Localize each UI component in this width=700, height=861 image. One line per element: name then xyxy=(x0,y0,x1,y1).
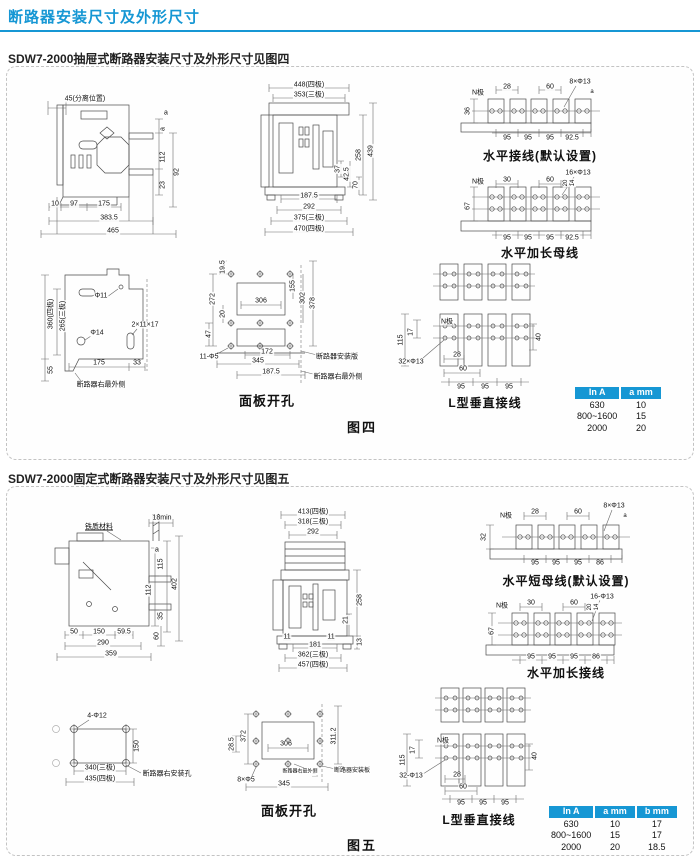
figure-subtitle: 面板开孔 xyxy=(238,395,296,408)
dim-label: 92.5 xyxy=(564,235,580,242)
dim-label: 345 xyxy=(251,358,265,365)
dim-label: 86 xyxy=(591,654,601,661)
figure-panel-cutout-fixed: 28.5372306311.28×Φ53452断路器右最外侧断路器安装板面板开孔 xyxy=(226,696,431,851)
dim-label: 95 xyxy=(504,384,514,391)
dim-label: 360(四极) xyxy=(48,298,55,330)
dim-label: 470(四极) xyxy=(293,226,325,233)
dim-label: 35 xyxy=(158,611,165,621)
mounting-holes-art xyxy=(23,701,223,811)
dim-label: 40 xyxy=(536,332,543,342)
dim-label: 402 xyxy=(172,577,179,591)
dim-label: 17 xyxy=(408,327,415,337)
dim-label: 311.2 xyxy=(331,727,338,746)
dim-label: 95 xyxy=(526,654,536,661)
figure-fixed-front-view: 413(四极)318(三极)29225821111113181362(三极)45… xyxy=(257,506,417,681)
table-cell: 800~1600 xyxy=(575,411,619,421)
dim-label: 272 xyxy=(210,292,217,306)
figure-5-panel: 铁质材料18mina11540211235605015059.5290359 4… xyxy=(6,486,694,856)
dim-label: 95 xyxy=(530,560,540,567)
dim-label: 28.5 xyxy=(229,736,236,752)
dim-label: 95 xyxy=(478,800,488,807)
dim-label: 10 xyxy=(50,201,60,208)
catalog-page: 断路器安装尺寸及外形尺寸 SDW7-2000抽屉式断路器安装尺寸及外形尺寸见图四 xyxy=(0,0,700,861)
dim-label: 55 xyxy=(48,365,55,375)
dim-label: 32 xyxy=(481,532,488,542)
dim-label: 95 xyxy=(569,654,579,661)
dim-label: 258 xyxy=(356,148,363,162)
dim-label: 95 xyxy=(523,135,533,142)
dim-label: 95 xyxy=(456,800,466,807)
dim-label: 8×Φ13 xyxy=(568,79,591,86)
dim-label: 8×Φ5 xyxy=(236,777,255,784)
dim-label: 95 xyxy=(573,560,583,567)
figure-panel-cutout-drawout: 19.5272204730615530237811-Φ5172345187.5断… xyxy=(197,253,407,433)
dim-label: 36 xyxy=(465,106,472,116)
table-cell: 2000 xyxy=(549,842,593,852)
dim-label: 372 xyxy=(241,729,248,743)
dim-label: 150 xyxy=(92,629,106,636)
dim-label: 175 xyxy=(97,201,111,208)
dim-label: 47 xyxy=(206,329,213,339)
dim-label: 70 xyxy=(353,180,360,190)
figure-horizontal-extended-busbar: N极306016×Φ1320146795959592.5水平加长母线 xyxy=(452,169,692,261)
dim-label: 30 xyxy=(526,600,536,607)
figure-4-panel: 45(分离位置)aa11223921097175383.5465 448(四极)… xyxy=(6,66,694,460)
dim-label: 175 xyxy=(92,360,106,367)
dim-label: a xyxy=(160,126,167,132)
dim-label: 11 xyxy=(282,634,291,641)
figure-horizontal-short-busbar: N极28608×Φ13a3295959586水平短母线(默认设置) xyxy=(462,501,697,596)
dim-label: 14 xyxy=(594,603,600,612)
figure-drawout-side-view: 45(分离位置)aa11223921097175383.5465 xyxy=(21,77,246,247)
dim-label: 86 xyxy=(595,560,605,567)
dim-label: Φ14 xyxy=(89,330,104,337)
table-cell: 10 xyxy=(621,400,661,410)
dim-label: 97 xyxy=(69,201,79,208)
mounting-side-view-art xyxy=(21,259,206,424)
dim-label: 11 xyxy=(326,634,335,641)
figure-subtitle: 水平加长母线 xyxy=(500,247,580,259)
dim-label: 95 xyxy=(551,560,561,567)
dim-label: 302 xyxy=(300,291,307,305)
dim-label: 37 xyxy=(335,164,342,174)
dim-label: N极 xyxy=(495,603,509,610)
table-cell: 15 xyxy=(595,830,635,840)
table-row: 63010 xyxy=(575,400,661,410)
table-row: 800~16001517 xyxy=(549,830,677,840)
dim-label: 318(三极) xyxy=(297,519,329,526)
dim-label: 60 xyxy=(573,509,583,516)
dim-label: 187.5 xyxy=(261,369,281,376)
figure-subtitle: L型垂直接线 xyxy=(441,814,516,826)
dim-label: 8×Φ13 xyxy=(602,503,625,510)
dim-label: 30 xyxy=(502,177,512,184)
dim-label: 28 xyxy=(452,352,462,359)
dim-label: 375(三极) xyxy=(293,215,325,222)
dim-label: 28 xyxy=(502,84,512,91)
figure-subtitle: 水平短母线(默认设置) xyxy=(502,575,631,587)
dim-label: 439 xyxy=(368,144,375,158)
table-header-cell: In A xyxy=(575,387,619,399)
dim-label: 95 xyxy=(523,235,533,242)
table-row: 20002018.5 xyxy=(549,842,677,852)
dim-label: 42.5 xyxy=(344,166,351,182)
dim-label: 60 xyxy=(154,631,161,641)
figure-mounting-holes: 4-Φ12150340(三极)435(四极)断路器右安装孔 xyxy=(23,701,223,811)
dim-label: N极 xyxy=(440,319,454,326)
dim-label: 95 xyxy=(480,384,490,391)
dim-label: 铁质材料 xyxy=(84,524,114,531)
dim-label: 413(四极) xyxy=(297,509,329,516)
dim-label: 112 xyxy=(160,150,167,163)
table-cell: 18.5 xyxy=(637,842,677,852)
dim-label: 20 xyxy=(563,179,569,188)
panel-cutout-drawout-art xyxy=(197,253,407,433)
dim-label: 150 xyxy=(134,739,141,753)
table-cell: 10 xyxy=(595,819,635,829)
dim-label: 362(三极) xyxy=(297,652,329,659)
dim-label: 92 xyxy=(174,167,181,177)
dim-label: 95 xyxy=(545,235,555,242)
figure-fixed-side-view: 铁质材料18mina11540211235605015059.5290359 xyxy=(21,506,256,666)
dim-label: 断路器右最外侧 xyxy=(281,770,318,775)
dim-label: 4-Φ12 xyxy=(86,713,108,720)
dim-label: 67 xyxy=(465,201,472,211)
dim-label: 40 xyxy=(532,751,539,761)
drawout-front-view-art xyxy=(247,79,407,249)
dim-label: 18min xyxy=(151,515,172,522)
dim-label: 59.5 xyxy=(116,629,132,636)
dim-label: 457(四极) xyxy=(297,662,329,669)
dim-label: 60 xyxy=(458,784,468,791)
dim-label: 断路器右最外侧 xyxy=(76,382,127,389)
dim-label: 断路器安装版 xyxy=(315,354,359,361)
figure-4-caption: 图四 xyxy=(347,417,377,436)
dim-label: 383.5 xyxy=(99,215,119,222)
dim-label: N极 xyxy=(436,738,450,745)
table-cell: 630 xyxy=(575,400,619,410)
figure-mounting-side-view: Φ112×11×17Φ14360(四极)265(三极)5517533断路器右最外… xyxy=(21,259,206,424)
dim-label: 292 xyxy=(302,204,316,211)
figure-5-caption: 图五 xyxy=(347,835,377,854)
dim-label: 50 xyxy=(69,629,79,636)
dim-label: 95 xyxy=(456,384,466,391)
dim-label: a xyxy=(163,110,169,117)
dim-label: 11-Φ5 xyxy=(198,354,219,361)
dim-label: 95 xyxy=(502,235,512,242)
dim-label: 306 xyxy=(254,298,268,305)
dim-label: 292 xyxy=(306,529,320,536)
table-row: 6301017 xyxy=(549,819,677,829)
table-cell: 17 xyxy=(637,830,677,840)
dim-label: 13 xyxy=(357,637,364,647)
dim-label: 45(分离位置) xyxy=(64,96,106,103)
figure-subtitle: 水平接线(默认设置) xyxy=(482,150,598,162)
figure-drawout-front-view: 448(四极)353(三极)2584393742.570187.5292375(… xyxy=(247,79,407,249)
dim-label: 378 xyxy=(310,296,317,310)
fixed-front-view-art xyxy=(257,506,417,681)
dim-label: Φ11 xyxy=(94,293,109,300)
dim-label: a xyxy=(154,547,160,554)
dim-label: 19.5 xyxy=(220,259,227,275)
table-header-cell: In A xyxy=(549,806,593,818)
dim-label: 断路器安装板 xyxy=(333,768,371,774)
dim-label: a xyxy=(622,513,627,519)
table-header-cell: a mm xyxy=(621,387,661,399)
dim-label: 16-Φ13 xyxy=(589,594,615,601)
dim-label: 181 xyxy=(308,642,322,649)
dim-label: 67 xyxy=(489,626,496,636)
dim-label: 断路器右安装孔 xyxy=(142,771,193,778)
dim-label: 340(三极) xyxy=(84,765,116,772)
table-cell: 15 xyxy=(621,411,661,421)
section-drawout-label: SDW7-2000抽屉式断路器安装尺寸及外形尺寸见图四 xyxy=(8,50,289,67)
table-cell: 800~1600 xyxy=(549,830,593,840)
dim-label: 断路器右最外侧 xyxy=(313,374,364,381)
figure-horizontal-wiring-default: N极28608×Φ13a3695959592.5水平接线(默认设置) xyxy=(452,77,692,165)
section-fixed-label: SDW7-2000固定式断路器安装尺寸及外形尺寸见图五 xyxy=(8,470,289,487)
dim-label: 112 xyxy=(146,583,153,596)
table-header-cell: a mm xyxy=(595,806,635,818)
dim-label: 448(四极) xyxy=(293,82,325,89)
dim-label: 20 xyxy=(220,309,227,319)
dim-label: a xyxy=(589,89,594,95)
dim-label: 187.5 xyxy=(299,193,319,200)
drawout-side-view-art xyxy=(21,77,246,247)
table-cell: 630 xyxy=(549,819,593,829)
dim-label: 465 xyxy=(106,228,120,235)
dim-label: 95 xyxy=(500,800,510,807)
dim-label: 60 xyxy=(545,84,555,91)
dim-label: 14 xyxy=(570,179,576,188)
table-cell: 2000 xyxy=(575,423,619,433)
header-rule xyxy=(0,30,700,32)
dim-label: 60 xyxy=(545,177,555,184)
dim-label: 33 xyxy=(132,360,142,367)
fixed-side-view-art xyxy=(21,506,256,666)
dim-label: 20 xyxy=(587,603,593,612)
figure-horizontal-extended-wiring: N极306016-Φ1320146795959586水平加长接线 xyxy=(462,593,697,685)
dim-label: 60 xyxy=(569,600,579,607)
dim-label: 28 xyxy=(452,772,462,779)
dim-label: 16×Φ13 xyxy=(564,170,591,177)
dim-label: 95 xyxy=(545,135,555,142)
table-header-cell: b mm xyxy=(637,806,677,818)
dim-label: 95 xyxy=(547,654,557,661)
dim-label: 353(三极) xyxy=(293,92,325,99)
dim-label: 155 xyxy=(290,279,297,293)
dim-label: 21 xyxy=(343,615,350,625)
figure-subtitle: 面板开孔 xyxy=(260,805,318,818)
table-cell: 20 xyxy=(621,423,661,433)
dim-label: N极 xyxy=(471,179,485,186)
dim-label: N极 xyxy=(471,90,485,97)
dim-label: 60 xyxy=(458,366,468,373)
fig4-current-dimension-table: In Aa mm63010800~160015200020 xyxy=(573,386,663,434)
dim-label: 306 xyxy=(279,741,293,748)
dim-label: 115 xyxy=(158,557,165,570)
table-cell: 20 xyxy=(595,842,635,852)
dim-label: 95 xyxy=(502,135,512,142)
panel-cutout-fixed-art xyxy=(226,696,431,851)
dim-label: 435(四极) xyxy=(84,776,116,783)
dim-label: 258 xyxy=(357,593,364,607)
fig5-current-dimension-table: In Aa mmb mm6301017800~1600151720002018.… xyxy=(547,805,679,853)
dim-label: 345 xyxy=(277,781,291,788)
dim-label: 359 xyxy=(104,651,118,658)
figure-subtitle: 水平加长接线 xyxy=(526,667,606,679)
dim-label: 2×11×17 xyxy=(130,322,159,329)
table-row: 200020 xyxy=(575,423,661,433)
dim-label: 290 xyxy=(96,640,110,647)
dim-label: N极 xyxy=(499,513,513,520)
dim-label: 28 xyxy=(530,509,540,516)
dim-label: 23 xyxy=(160,180,167,190)
page-title: 断路器安装尺寸及外形尺寸 xyxy=(8,6,200,27)
table-row: 800~160015 xyxy=(575,411,661,421)
dim-label: 265(三极) xyxy=(60,300,67,332)
dim-label: 172 xyxy=(260,349,274,356)
dim-label: 92.5 xyxy=(564,135,580,142)
figure-subtitle: L型垂直接线 xyxy=(447,397,522,409)
table-cell: 17 xyxy=(637,819,677,829)
